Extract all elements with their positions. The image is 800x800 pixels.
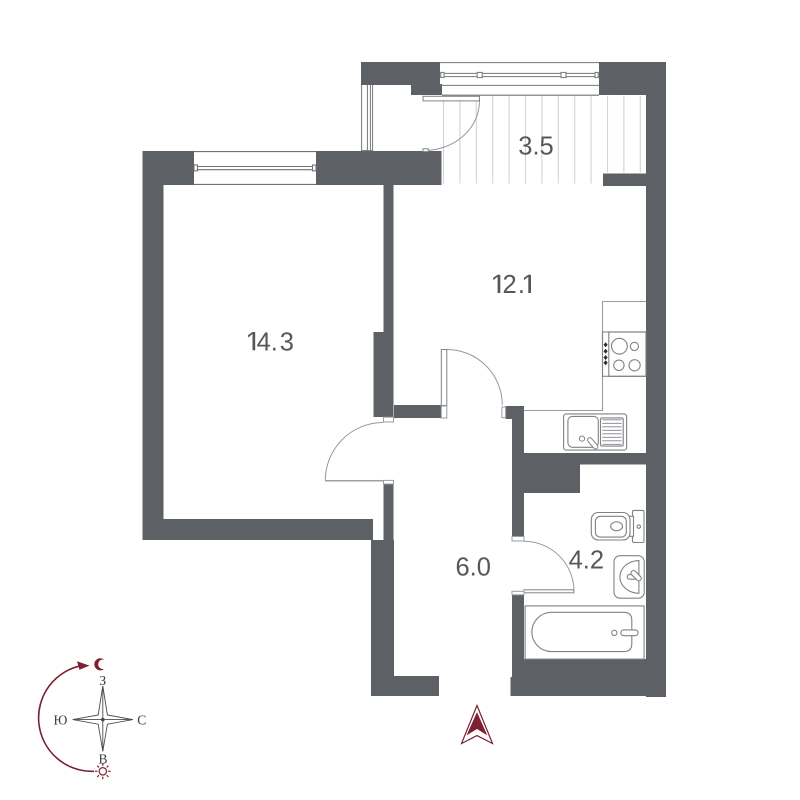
svg-text:.: . xyxy=(518,271,525,299)
svg-text:В: В xyxy=(98,752,107,767)
svg-text:Ю: Ю xyxy=(54,712,68,727)
svg-text:3: 3 xyxy=(280,328,294,356)
svg-text:З: З xyxy=(99,673,106,688)
svg-text:.: . xyxy=(271,328,278,356)
svg-text:4.2: 4.2 xyxy=(569,547,604,575)
svg-text:4: 4 xyxy=(257,328,271,356)
svg-text:6.0: 6.0 xyxy=(455,553,490,581)
svg-text:С: С xyxy=(137,712,146,727)
svg-text:2: 2 xyxy=(503,271,517,299)
svg-text:3.5: 3.5 xyxy=(518,133,553,161)
